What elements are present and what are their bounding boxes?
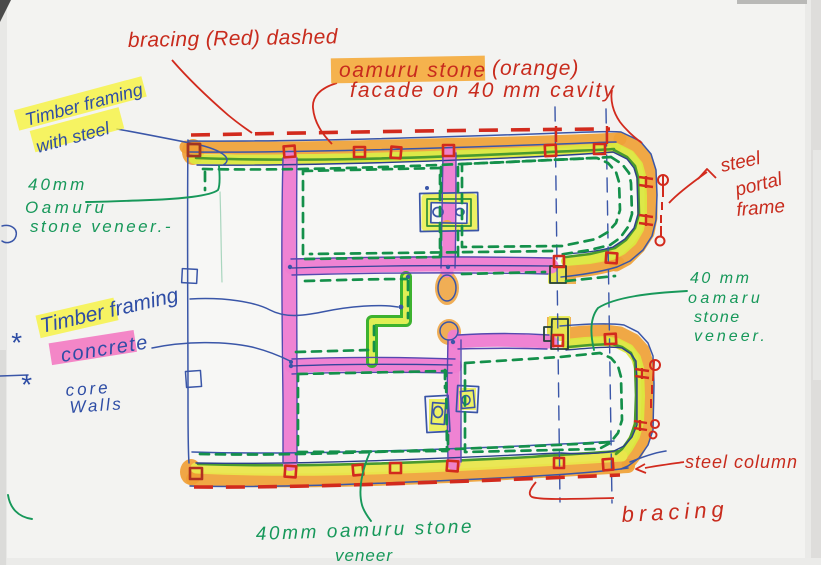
svg-text:Oamuru: Oamuru bbox=[25, 198, 107, 217]
svg-text:Walls: Walls bbox=[69, 394, 124, 417]
svg-text:*: * bbox=[20, 369, 32, 400]
svg-text:veneer: veneer bbox=[335, 546, 393, 565]
svg-text:oamaru: oamaru bbox=[688, 290, 763, 307]
svg-text:veneer.: veneer. bbox=[694, 328, 768, 345]
svg-text:stone veneer.-: stone veneer.- bbox=[30, 217, 173, 236]
svg-text:steel column: steel column bbox=[685, 452, 798, 472]
svg-text:facade on 40 mm cavity: facade on 40 mm cavity bbox=[350, 79, 616, 102]
svg-text:bracing (Red) dashed: bracing (Red) dashed bbox=[128, 25, 339, 52]
svg-text:*: * bbox=[10, 327, 22, 358]
svg-text:stone: stone bbox=[694, 309, 741, 326]
svg-text:frame: frame bbox=[736, 196, 786, 221]
svg-text:(orange): (orange) bbox=[492, 57, 579, 80]
svg-text:40mm: 40mm bbox=[28, 175, 87, 194]
svg-text:40 mm: 40 mm bbox=[690, 270, 751, 287]
